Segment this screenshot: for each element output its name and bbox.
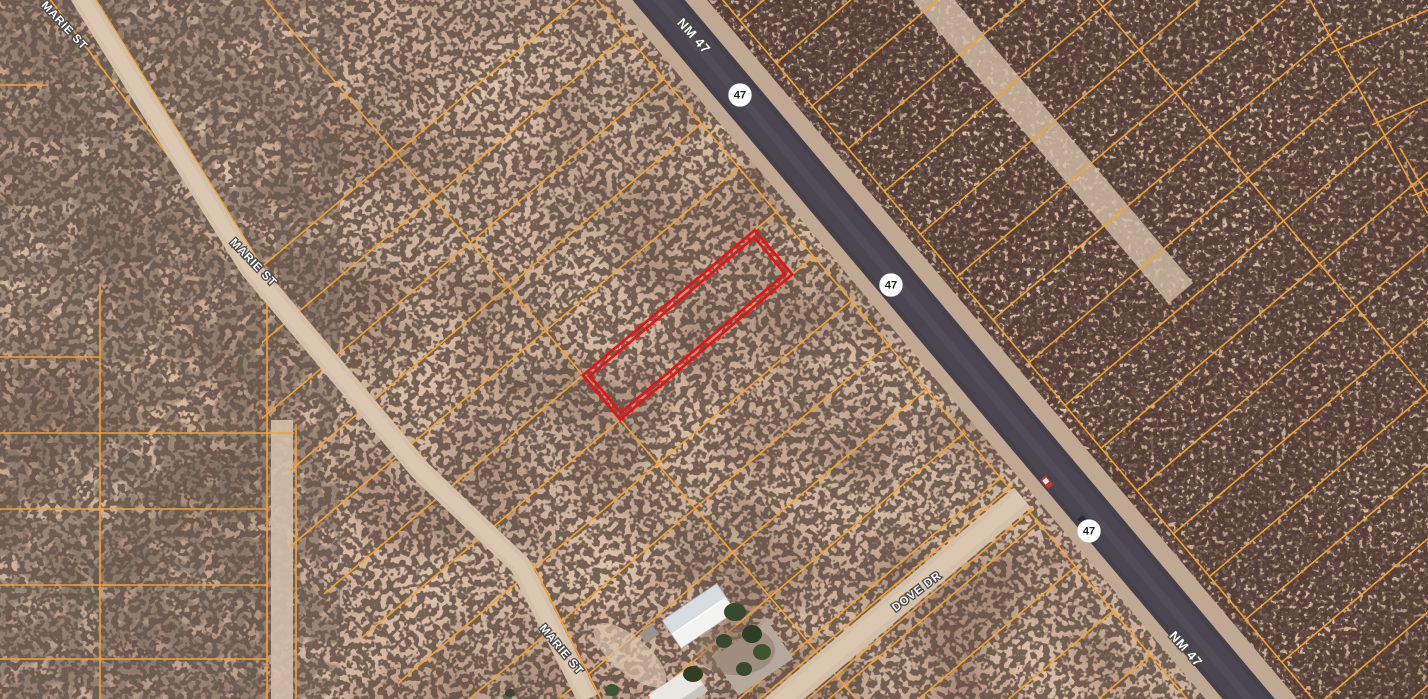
shield-number: 47 <box>734 90 746 102</box>
route-shield-47-middle[interactable]: 47 <box>880 274 903 297</box>
shield-number: 47 <box>885 280 897 292</box>
route-shield-47-top[interactable]: 47 <box>729 84 752 107</box>
map-viewport[interactable]: NM 47 NM 47 MARIE ST MARIE ST MARIE ST D… <box>0 0 1428 699</box>
dirt-track-north-south <box>271 420 293 699</box>
shield-number: 47 <box>1083 526 1095 538</box>
satellite-map[interactable]: NM 47 NM 47 MARIE ST MARIE ST MARIE ST D… <box>0 0 1428 699</box>
route-shield-47-bottom[interactable]: 47 <box>1078 520 1101 543</box>
